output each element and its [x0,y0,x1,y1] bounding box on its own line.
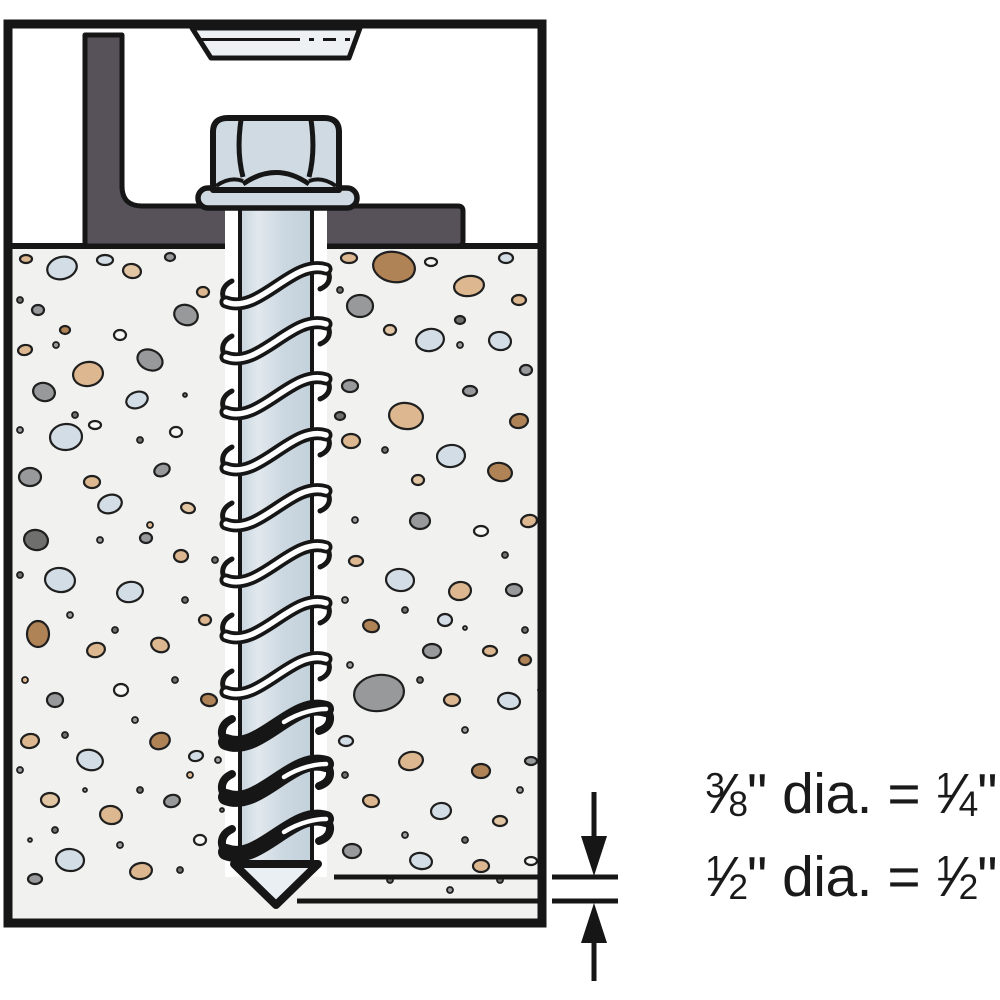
top-fixture [192,28,360,58]
aggregate-stone [412,475,424,485]
aggregate-speck [187,772,193,778]
aggregate-stone [20,255,32,263]
aggregate-stone [32,305,44,315]
aggregate-stone [463,386,477,396]
aggregate-stone [483,646,497,656]
aggregate-stone [19,468,41,486]
aggregate-stone [165,253,175,261]
aggregate-stone [335,412,345,420]
aggregate-stone [97,255,113,265]
aggregate-speck [17,297,23,303]
top-fixture-body [192,28,360,58]
arrowhead-down [581,836,607,876]
note-1-suffix: " [977,762,997,826]
hex-head [213,118,339,190]
aggregate-stone [47,693,63,707]
aggregate-stone [410,513,430,529]
aggregate-stone [343,844,361,858]
aggregate-stone [114,330,126,340]
aggregate-speck [462,837,468,843]
note-2-middle: " dia. = [747,845,935,909]
aggregate-speck [28,838,32,842]
fraction-3-8: 3⁄8 [705,762,747,826]
aggregate-stone [28,874,42,884]
aggregate-stone [438,614,452,626]
aggregate-stone [506,584,522,596]
aggregate-speck [382,447,388,453]
aggregate-stone [84,476,100,488]
aggregate-speck [402,607,408,613]
aggregate-speck [17,767,23,773]
hole-depth-note-line-1: 3⁄8" dia. = 1⁄4" [705,766,997,823]
aggregate-speck [337,287,343,293]
aggregate-stone [525,757,537,765]
aggregate-speck [53,342,59,348]
aggregate-stone [170,427,182,437]
fraction-1-4: 1⁄4 [935,762,977,826]
aggregate-stone [520,365,532,375]
aggregate-speck [215,757,221,763]
aggregate-speck [417,677,423,683]
aggregate-stone [444,694,460,706]
aggregate-speck [457,342,463,348]
aggregate-stone [349,556,363,566]
aggregate-stone [493,816,507,826]
aggregate-speck [462,727,468,733]
aggregate-stone [140,533,152,543]
aggregate-speck [402,832,408,838]
aggregate-stone [89,421,101,429]
aggregate-stone [347,295,373,317]
aggregate-speck [182,597,188,603]
aggregate-speck [522,627,528,633]
aggregate-stone [499,253,513,263]
aggregate-stone [114,684,128,696]
aggregate-stone [473,860,489,872]
aggregate-speck [212,557,218,563]
aggregate-speck [67,612,73,618]
aggregate-speck [463,626,467,630]
aggregate-speck [72,412,78,418]
aggregate-stone [197,287,209,297]
aggregate-stone [474,526,488,536]
aggregate-stone [41,793,59,807]
aggregate-speck [347,662,353,668]
fraction-1-2b: 1⁄2 [935,845,977,909]
aggregate-speck [172,677,178,683]
aggregate-speck [132,717,138,723]
aggregate-stone [342,434,360,448]
aggregate-stone [339,736,353,746]
fraction-1-2: 1⁄2 [705,845,747,909]
aggregate-speck [342,597,348,603]
aggregate-stone [194,835,206,845]
aggregate-speck [22,677,28,683]
aggregate-stone [341,253,357,263]
aggregate-stone [174,550,188,562]
aggregate-speck [17,572,23,578]
aggregate-speck [52,827,58,833]
aggregate-speck [183,393,187,397]
hole-depth-note-line-2: 1⁄2" dia. = 1⁄2" [705,849,997,906]
aggregate-stone [384,325,396,335]
note-2-suffix: " [977,845,997,909]
aggregate-speck [177,867,183,873]
aggregate-stone [342,380,358,392]
aggregate-stone [512,295,526,305]
aggregate-speck [220,808,224,812]
aggregate-stone [60,326,70,334]
aggregate-stone [525,857,537,865]
aggregate-speck [147,522,153,528]
aggregate-speck [112,627,118,633]
aggregate-speck [62,732,68,738]
aggregate-speck [137,787,143,793]
aggregate-stone [472,764,490,778]
aggregate-stone [199,615,211,625]
aggregate-speck [137,437,143,443]
aggregate-speck [502,552,508,558]
aggregate-speck [97,537,103,543]
aggregate-stone [455,316,465,324]
aggregate-speck [517,787,523,793]
aggregate-speck [447,887,453,893]
depth-dimension-arrows [552,792,618,981]
aggregate-speck [117,842,123,848]
aggregate-stone [519,655,531,665]
aggregate-stone [425,258,437,266]
aggregate-stone [423,644,441,658]
arrowhead-up [581,903,607,943]
aggregate-speck [17,427,23,433]
aggregate-speck [83,788,87,792]
aggregate-stone [27,621,49,647]
aggregate-speck [352,517,358,523]
anchor-installation-figure: 3⁄8" dia. = 1⁄4" 1⁄2" dia. = 1⁄2" [0,0,1000,1000]
aggregate-speck [342,772,348,778]
note-1-middle: " dia. = [747,762,935,826]
